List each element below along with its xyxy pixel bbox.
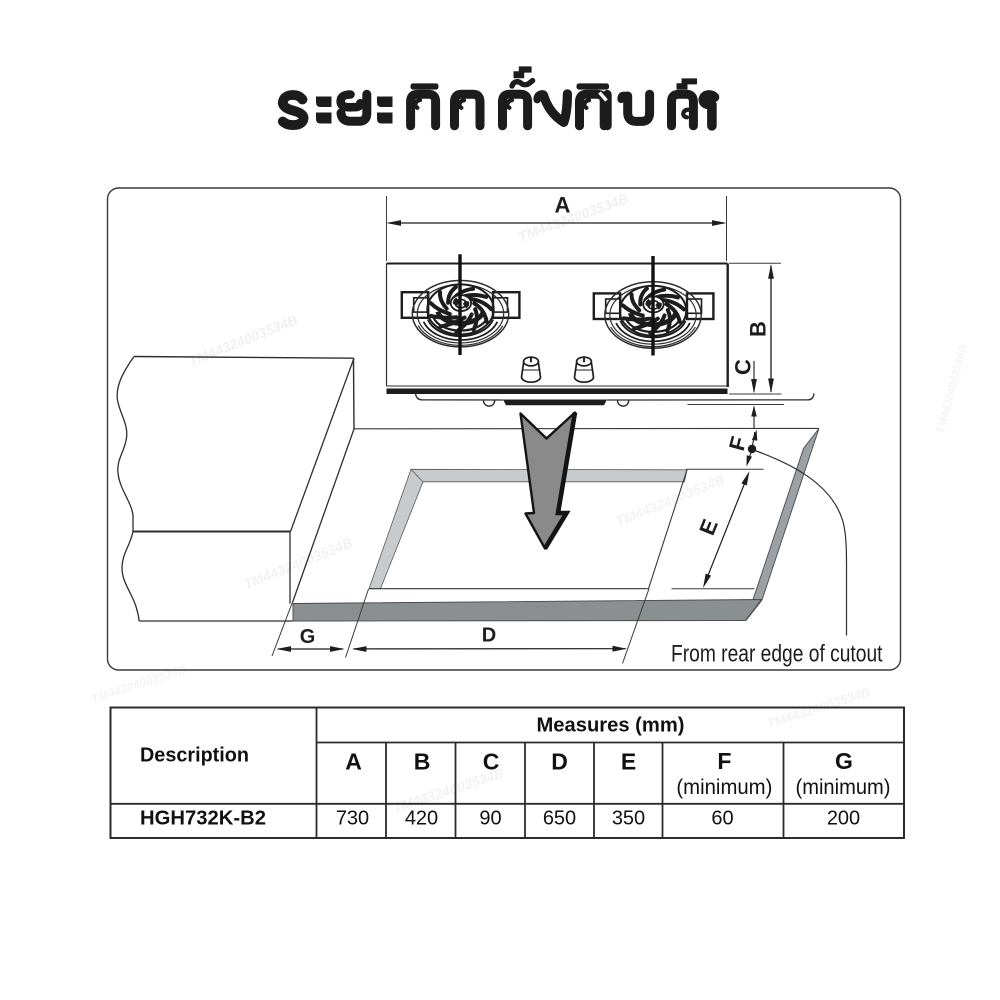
svg-text:D: D bbox=[551, 749, 568, 775]
svg-text:B: B bbox=[414, 749, 431, 775]
svg-text:F: F bbox=[717, 748, 731, 774]
svg-text:200: 200 bbox=[827, 808, 860, 830]
svg-text:C: C bbox=[483, 749, 500, 775]
svg-text:D: D bbox=[482, 625, 496, 647]
svg-text:650: 650 bbox=[543, 808, 576, 830]
svg-text:90: 90 bbox=[479, 808, 501, 830]
svg-text:420: 420 bbox=[405, 808, 438, 830]
svg-text:E: E bbox=[621, 749, 636, 775]
svg-text:60: 60 bbox=[711, 808, 733, 830]
svg-text:(minimum): (minimum) bbox=[676, 776, 772, 799]
svg-text:C: C bbox=[731, 359, 756, 375]
svg-text:HGH732K-B2: HGH732K-B2 bbox=[140, 808, 266, 830]
svg-text:350: 350 bbox=[612, 808, 645, 830]
svg-text:Measures (mm): Measures (mm) bbox=[537, 715, 685, 737]
svg-text:(minimum): (minimum) bbox=[796, 776, 891, 799]
svg-text:G: G bbox=[835, 748, 853, 774]
svg-text:Description: Description bbox=[140, 745, 249, 767]
svg-text:A: A bbox=[345, 749, 362, 775]
svg-text:A: A bbox=[555, 193, 571, 218]
svg-text:G: G bbox=[300, 626, 316, 648]
svg-text:B: B bbox=[746, 321, 771, 337]
svg-text:From rear edge of cutout: From rear edge of cutout bbox=[671, 641, 883, 668]
svg-text:730: 730 bbox=[336, 808, 369, 830]
